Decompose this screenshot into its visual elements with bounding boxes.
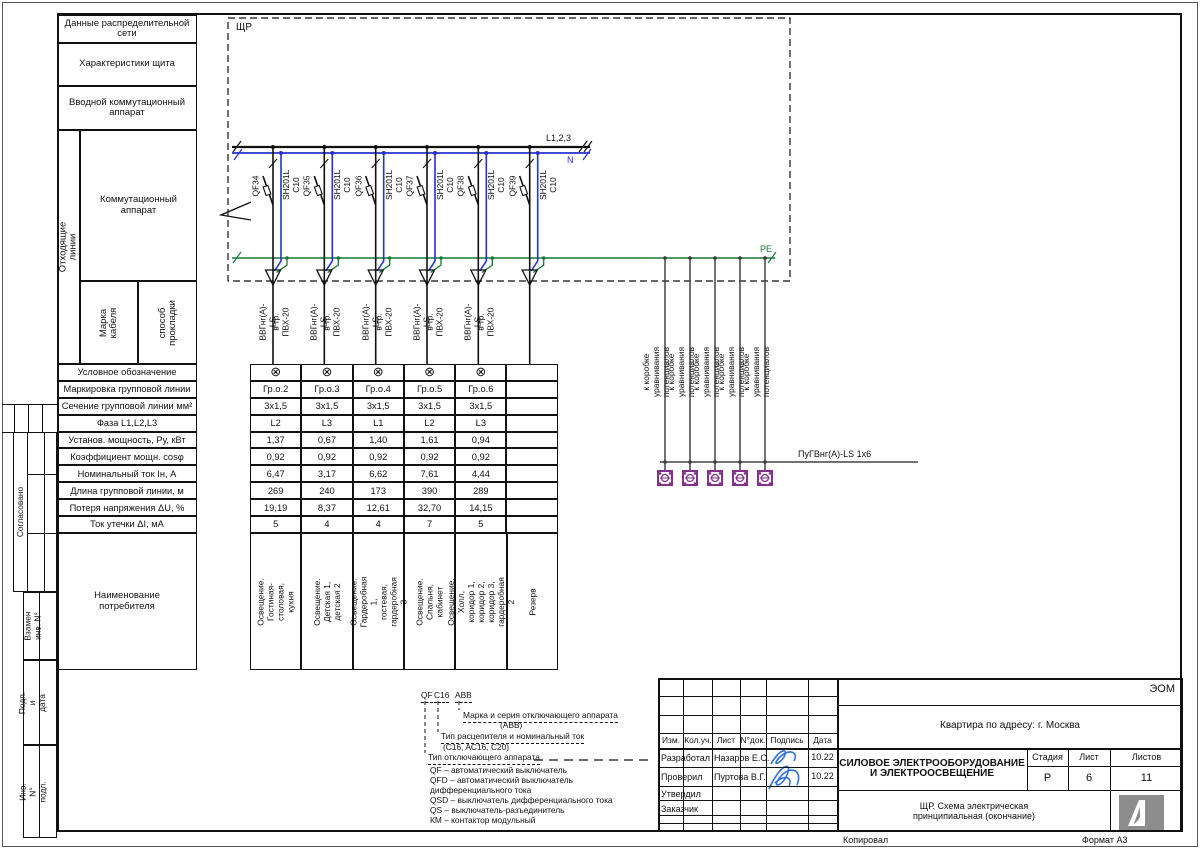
table-cell-group: Гр.о.6 bbox=[455, 381, 506, 398]
table-cell-symbol: ⊗ bbox=[404, 364, 455, 381]
table-cell-section: 3x1,5 bbox=[455, 398, 506, 415]
margin-inv-label: Инв. N° подл. bbox=[26, 748, 39, 835]
legend-token-abb: ABB bbox=[455, 690, 472, 703]
table-cell-length: 390 bbox=[404, 482, 455, 499]
margin-line bbox=[27, 533, 57, 534]
consumer-label: Наименование потребителя bbox=[57, 533, 197, 670]
table-cell-phase: L2 bbox=[404, 415, 455, 432]
margin-line bbox=[2, 404, 57, 405]
tb-col-koluch: Кол.уч. bbox=[684, 733, 712, 748]
cable-laying-label: в тр. ПВХ-20 bbox=[275, 282, 286, 362]
tb-role: Разработал bbox=[661, 753, 710, 764]
tb-line bbox=[658, 800, 837, 801]
table-cell-leak: 4 bbox=[353, 516, 404, 533]
table-cell-group: Гр.о.3 bbox=[301, 381, 352, 398]
bonding-drop-label: к коробке уравнивания потенциалов bbox=[700, 286, 712, 458]
sidebar-cable-brand: Марка кабеля bbox=[80, 281, 138, 364]
legend-trip-sub: (C16, AC16, C20) bbox=[443, 742, 509, 753]
table-cell-loss: 19,19 bbox=[250, 499, 301, 516]
drawing-subtitle: ЩР. Схема электрическая принципиальная (… bbox=[838, 790, 1110, 832]
sidebar-net-data: Данные распределительной сети bbox=[57, 15, 197, 43]
legend-item: QSD – выключатель дифференциального тока bbox=[430, 795, 613, 806]
margin-replace-label: Взамен инв. N° bbox=[26, 594, 39, 658]
tb-col-data: Дата bbox=[808, 733, 837, 748]
tb-role: Проверил bbox=[661, 772, 702, 783]
table-cell-section bbox=[506, 398, 557, 415]
table-cell-power bbox=[506, 432, 557, 449]
table-cell-group: Гр.о.4 bbox=[353, 381, 404, 398]
legend-brand-line: Марка и серия отключающего аппарата bbox=[463, 710, 618, 723]
table-cell-cos: 0,92 bbox=[404, 448, 455, 465]
param-label: Длина групповой линии, м bbox=[57, 482, 197, 499]
tb-role: Утвердил bbox=[661, 789, 701, 800]
continuation-break-mark bbox=[221, 202, 251, 220]
table-cell-group: Гр.о.2 bbox=[250, 381, 301, 398]
margin-line bbox=[28, 404, 29, 432]
title-main: СИЛОВОЕ ЭЛЕКТРООБОРУДОВАНИЕ И ЭЛЕКТРООСВ… bbox=[838, 749, 1026, 789]
tb-col-podpis: Подпись bbox=[766, 733, 808, 748]
table-cell-section: 3x1,5 bbox=[353, 398, 404, 415]
margin-line bbox=[14, 404, 15, 432]
copied-label: Копировал bbox=[843, 835, 888, 846]
cable-laying-label: в тр. ПВХ-20 bbox=[378, 282, 389, 362]
margin-line bbox=[44, 432, 45, 592]
param-label: Номинальный ток Iн, А bbox=[57, 465, 197, 482]
bonding-drop-label: к коробке уравнивания потенциалов bbox=[675, 286, 687, 458]
table-cell-length: 289 bbox=[455, 482, 506, 499]
bonding-drop-label: к коробке уравнивания потенциалов bbox=[750, 286, 762, 458]
table-cell-cos: 0,92 bbox=[353, 448, 404, 465]
table-cell-symbol: ⊗ bbox=[353, 364, 404, 381]
table-cell-power: 1,37 bbox=[250, 432, 301, 449]
table-cell-symbol: ⊗ bbox=[455, 364, 506, 381]
consumer-cell: Освещение. Гардеробная 1, гостевая, гард… bbox=[353, 533, 404, 670]
breaker-id-label: QF36 bbox=[352, 158, 364, 213]
table-cell-current: 6,47 bbox=[250, 465, 301, 482]
param-label: Условное обозначение bbox=[57, 364, 197, 381]
sheet-value: 6 bbox=[1068, 766, 1110, 790]
legend-type-line: Тип отключающего аппарата bbox=[428, 752, 540, 765]
table-cell-leak: 5 bbox=[455, 516, 506, 533]
margin-line bbox=[27, 432, 28, 592]
tb-col-ndok: N°док. bbox=[740, 733, 766, 748]
table-cell-current: 3,17 bbox=[301, 465, 352, 482]
table-cell-cos: 0,92 bbox=[455, 448, 506, 465]
param-label: Потеря напряжения ΔU, % bbox=[57, 499, 197, 516]
consumer-cell: Освещение. Детская 1, детская 2 bbox=[301, 533, 353, 670]
table-cell-section: 3x1,5 bbox=[301, 398, 352, 415]
table-cell-loss: 14,15 bbox=[455, 499, 506, 516]
consumer-cell: Освещение. Гостиная-столовая, кухня bbox=[250, 533, 301, 670]
table-cell-cos: 0,92 bbox=[301, 448, 352, 465]
consumer-cell: Освещение. Холл, коридор 1, коридор 2, к… bbox=[455, 533, 507, 670]
param-label: Ток утечки ΔI, мА bbox=[57, 516, 197, 533]
param-label: Установ. мощность, Ру, кВт bbox=[57, 432, 197, 449]
bonding-drop-label: к коробке уравнивания потенциалов bbox=[650, 286, 662, 458]
param-label: Коэффициент мощн. cosφ bbox=[57, 448, 197, 465]
tb-role: Заказчик bbox=[661, 804, 698, 815]
bonding-drop-label: к коробке уравнивания потенциалов bbox=[725, 286, 737, 458]
tb-line bbox=[658, 786, 837, 787]
cable-laying-label: в тр. ПВХ-20 bbox=[480, 282, 491, 362]
sidebar-panel-chars: Характеристики щита bbox=[57, 43, 197, 86]
table-cell-loss: 8,37 bbox=[301, 499, 352, 516]
legend-item: КМ – контактор модульный bbox=[430, 815, 535, 826]
cable-laying-label: в тр. ПВХ-20 bbox=[326, 282, 337, 362]
table-cell-phase bbox=[506, 415, 557, 432]
table-cell-symbol: ⊗ bbox=[250, 364, 301, 381]
tb-col-list: Лист bbox=[712, 733, 740, 748]
group-line-table: ⊗ ⊗ ⊗ ⊗ ⊗ Гр.о.2 Гр.о.3 Гр.о.4 Гр.о.5 Гр… bbox=[250, 364, 558, 533]
panel-label: ЩР bbox=[236, 23, 252, 34]
project-code: ЭОМ bbox=[1080, 684, 1175, 695]
tb-line bbox=[658, 823, 837, 824]
breaker-id-label: QF37 bbox=[403, 158, 415, 213]
sidebar-switching: Коммутационный аппарат bbox=[80, 130, 197, 281]
table-cell-leak: 4 bbox=[301, 516, 352, 533]
sidebar-laying: способ прокладки bbox=[138, 281, 197, 364]
breaker-type-label: SH201L C10 bbox=[542, 152, 554, 218]
table-cell-phase: L3 bbox=[301, 415, 352, 432]
breaker-id-label: QF34 bbox=[249, 158, 261, 213]
table-cell-phase: L1 bbox=[353, 415, 404, 432]
table-cell-leak bbox=[506, 516, 557, 533]
legend-item: QS – выключатель-разъединитель bbox=[430, 805, 564, 816]
legend-token-c16: C16 bbox=[434, 690, 449, 703]
tb-col-izm: Изм. bbox=[658, 733, 684, 748]
table-cell-length: 269 bbox=[250, 482, 301, 499]
table-cell-section: 3x1,5 bbox=[250, 398, 301, 415]
tb-date: 10.22 bbox=[808, 767, 837, 786]
tb-name: Пуртова В.Г. bbox=[714, 772, 766, 783]
drawing-sheet: ЩР L1,2,3 N PE ПуГВнг(А)-LS 1x6 QF34 QF3… bbox=[0, 0, 1200, 848]
tb-date: 10.22 bbox=[808, 748, 837, 767]
table-cell-length: 173 bbox=[353, 482, 404, 499]
param-label: Фаза L1,L2,L3 bbox=[57, 415, 197, 432]
stage-value: Р bbox=[1027, 766, 1068, 790]
table-cell-group bbox=[506, 381, 557, 398]
table-cell-power: 0,67 bbox=[301, 432, 352, 449]
consumer-cell: Резерв bbox=[507, 533, 558, 670]
tb-name: Назаров Е.С. bbox=[714, 753, 769, 764]
panel-boundary-dashed bbox=[228, 18, 790, 281]
param-label: Сечение групповой линии мм² bbox=[57, 398, 197, 415]
breaker-type-label: SH201L C10 bbox=[285, 152, 297, 218]
tb-line bbox=[712, 678, 713, 832]
phase-bus-label: L1,2,3 bbox=[546, 133, 571, 144]
margin-signdate-label: Подп. и дата bbox=[26, 663, 39, 742]
legend-brand-sub: (ABB) bbox=[500, 720, 522, 731]
breaker-type-label: SH201L C10 bbox=[388, 152, 400, 218]
table-cell-cos: 0,92 bbox=[250, 448, 301, 465]
format-label: Формат А3 bbox=[1082, 835, 1127, 846]
margin-line bbox=[27, 474, 57, 475]
sidebar-input-switch: Вводной коммутационный аппарат bbox=[57, 86, 197, 130]
param-label-column: Условное обозначение Маркировка группово… bbox=[57, 364, 197, 533]
legend-item: QF – автоматический выключатель bbox=[430, 765, 567, 776]
pe-label: PE bbox=[760, 244, 772, 255]
table-cell-power: 1,61 bbox=[404, 432, 455, 449]
breaker-type-label: SH201L C10 bbox=[336, 152, 348, 218]
table-cell-length bbox=[506, 482, 557, 499]
sheets-value: 11 bbox=[1110, 766, 1183, 790]
table-cell-section: 3x1,5 bbox=[404, 398, 455, 415]
table-cell-loss bbox=[506, 499, 557, 516]
table-cell-leak: 5 bbox=[250, 516, 301, 533]
param-label: Маркировка групповой линии bbox=[57, 381, 197, 398]
table-cell-current bbox=[506, 465, 557, 482]
tb-line bbox=[658, 696, 837, 697]
table-cell-loss: 12,61 bbox=[353, 499, 404, 516]
breaker-id-label: QF35 bbox=[300, 158, 312, 213]
margin-line bbox=[42, 404, 43, 432]
cable-laying-label: в тр. ПВХ-20 bbox=[429, 282, 440, 362]
stage-label: Стадия bbox=[1027, 748, 1068, 766]
neutral-label: N bbox=[567, 155, 574, 166]
table-cell-current: 6,62 bbox=[353, 465, 404, 482]
table-cell-current: 4,44 bbox=[455, 465, 506, 482]
breaker-type-label: SH201L C10 bbox=[439, 152, 451, 218]
sheet-label: Лист bbox=[1068, 748, 1110, 766]
sheets-label: Листов bbox=[1110, 748, 1183, 766]
sidebar-outgoing: Отходящие линии bbox=[57, 130, 80, 364]
project-address: Квартира по адресу: г. Москва bbox=[838, 706, 1182, 747]
table-cell-power: 0,94 bbox=[455, 432, 506, 449]
tb-line bbox=[658, 815, 837, 816]
table-cell-phase: L3 bbox=[455, 415, 506, 432]
legend-item: дифференциального тока bbox=[430, 785, 531, 796]
legend-item: QFD – автоматический выключатель bbox=[430, 775, 573, 786]
table-cell-phase: L2 bbox=[250, 415, 301, 432]
tb-line bbox=[658, 715, 837, 716]
margin-agreed-label: Согласовано bbox=[14, 436, 27, 588]
bonding-wire-label: ПуГВнг(А)-LS 1x6 bbox=[798, 449, 871, 460]
table-cell-power: 1,40 bbox=[353, 432, 404, 449]
legend-token-qf: QF bbox=[421, 690, 433, 703]
table-cell-symbol: ⊗ bbox=[301, 364, 352, 381]
table-cell-cos bbox=[506, 448, 557, 465]
table-cell-current: 7,61 bbox=[404, 465, 455, 482]
table-cell-leak: 7 bbox=[404, 516, 455, 533]
table-cell-length: 240 bbox=[301, 482, 352, 499]
table-cell-symbol bbox=[506, 364, 557, 381]
table-cell-group: Гр.о.5 bbox=[404, 381, 455, 398]
breaker-id-label: QF38 bbox=[454, 158, 466, 213]
breaker-type-label: SH201L C10 bbox=[490, 152, 502, 218]
breaker-id-label: QF39 bbox=[506, 158, 518, 213]
table-cell-loss: 32,70 bbox=[404, 499, 455, 516]
